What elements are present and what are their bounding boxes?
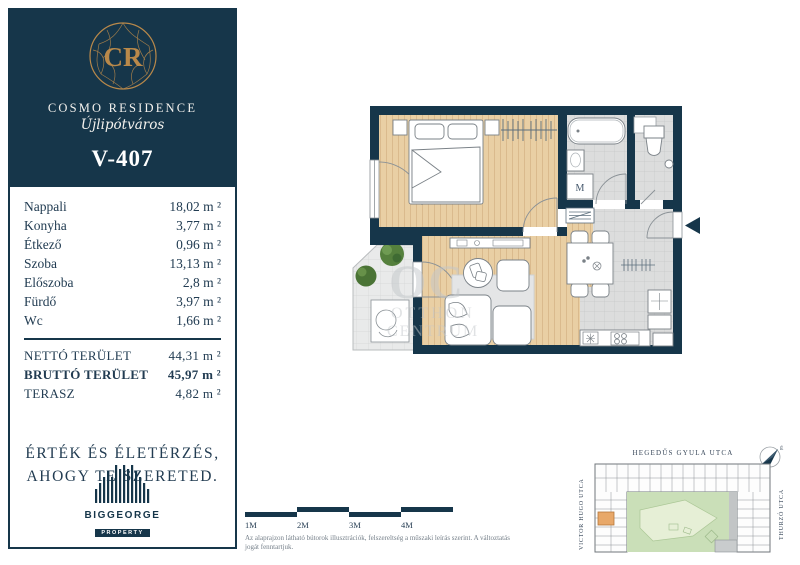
room-row: Wc1,66 m ² (24, 311, 221, 330)
watermark-line1: OTTHON (391, 305, 475, 322)
building-outline (595, 464, 770, 552)
total-value: 44,31 m ² (169, 346, 221, 365)
developer-logo-icon (93, 463, 153, 503)
total-label: NETTÓ TERÜLET (24, 346, 131, 365)
room-row: Szoba13,13 m ² (24, 254, 221, 273)
card-body: Nappali18,02 m ² Konyha3,77 m ² Étkező0,… (8, 187, 237, 549)
scale-label: 1M (245, 520, 257, 530)
room-row: Étkező0,96 m ² (24, 235, 221, 254)
brand-name: COSMO RESIDENCE (8, 101, 237, 116)
room-label: Előszoba (24, 273, 74, 292)
room-list: Nappali18,02 m ² Konyha3,77 m ² Étkező0,… (10, 187, 235, 403)
chair (592, 283, 609, 297)
scale-bar: 1M 2M 3M 4M (245, 503, 465, 533)
floor-plan: M (345, 92, 705, 362)
watermark-initials: OC (389, 256, 465, 309)
room-row: Előszoba2,8 m ² (24, 273, 221, 292)
developer-sub: PROPERTY (95, 529, 149, 537)
nightstand (393, 120, 407, 135)
unit-id: V-407 (8, 146, 237, 172)
bed (393, 120, 499, 204)
room-area: 3,77 m ² (176, 216, 221, 235)
room-label: Étkező (24, 235, 61, 254)
compass-label: É (780, 444, 784, 452)
tagline-line1: ÉRTÉK ÉS ÉLETÉRZÉS, (10, 442, 235, 465)
nightstand (485, 120, 499, 135)
room-label: Szoba (24, 254, 57, 273)
scale-label: 2M (297, 520, 309, 530)
room-label: Nappali (24, 197, 67, 216)
total-row-netto: NETTÓ TERÜLET44,31 m ² (24, 346, 221, 365)
room-row: Nappali18,02 m ² (24, 197, 221, 216)
street-label-top: HEGEDŰS GYULA UTCA (633, 449, 734, 457)
room-area: 1,66 m ² (176, 311, 221, 330)
totals-divider (24, 338, 221, 340)
brand-monogram: CR (103, 42, 142, 72)
brochure-page: CR COSMO RESIDENCE Újlipótváros V-407 Na… (0, 0, 800, 565)
entrance-arrow-icon (685, 217, 700, 234)
watermark-line2: CENTRUM (387, 323, 479, 340)
brand-logo: CR (8, 8, 237, 97)
armchair (497, 260, 529, 291)
total-value: 45,97 m ² (168, 365, 221, 384)
cabinet (648, 315, 671, 329)
room-area: 0,96 m ² (176, 235, 221, 254)
room-label: Wc (24, 311, 43, 330)
total-row-terasz: TERASZ4,82 m ² (24, 384, 221, 403)
room-area: 3,97 m ² (176, 292, 221, 311)
plant-icon (356, 266, 377, 287)
pillow (448, 124, 477, 139)
site-map: HEGEDŰS GYULA UTCA VICTOR HUGO UTCA THUR… (565, 440, 800, 564)
developer-name: BIGGEORGE (10, 510, 235, 521)
brand-logo-icon: CR (87, 20, 159, 92)
info-card: CR COSMO RESIDENCE Újlipótváros V-407 Na… (8, 8, 237, 551)
total-row-brutto: BRUTTÓ TERÜLET45,97 m ² (24, 365, 221, 384)
room-label: Fürdő (24, 292, 56, 311)
room-area: 13,13 m ² (169, 254, 221, 273)
sofa-chaise (493, 306, 531, 345)
scale-label: 4M (401, 520, 413, 530)
total-label: TERASZ (24, 384, 75, 403)
cabinet (653, 333, 673, 346)
brand-district: Újlipótváros (8, 117, 237, 133)
room-row: Fürdő3,97 m ² (24, 292, 221, 311)
total-label: BRUTTÓ TERÜLET (24, 365, 148, 384)
total-value: 4,82 m ² (175, 384, 221, 403)
room-area: 2,8 m ² (183, 273, 221, 292)
highlighted-unit (598, 512, 614, 525)
console (450, 238, 530, 248)
toilet (646, 138, 662, 155)
card-header: CR COSMO RESIDENCE Újlipótváros V-407 (8, 8, 237, 187)
pillow (415, 124, 444, 139)
scale-label: 3M (349, 520, 361, 530)
dining-table (567, 243, 613, 284)
radiator (566, 208, 594, 223)
room-area: 18,02 m ² (169, 197, 221, 216)
room-label: Konyha (24, 216, 67, 235)
street-label-left: VICTOR HUGO UTCA (579, 478, 585, 550)
chair (571, 283, 588, 297)
street-label-right: THURZÓ UTCA (777, 489, 785, 540)
disclaimer-text: Az alaprajzon látható bútorok illusztrác… (245, 534, 513, 552)
room-row: Konyha3,77 m ² (24, 216, 221, 235)
developer-logo: BIGGEORGE PROPERTY (10, 463, 235, 539)
washing-machine-label: M (576, 183, 585, 194)
